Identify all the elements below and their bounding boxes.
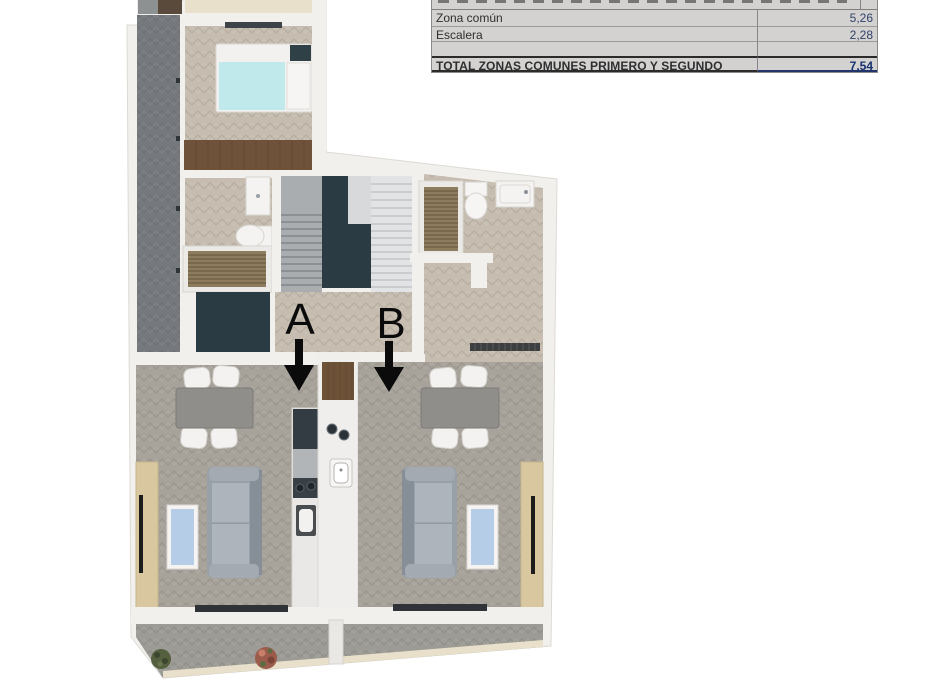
dining-table-a <box>176 388 253 428</box>
terrace-door-b <box>393 604 487 611</box>
bed-cushion <box>290 45 311 61</box>
shower-a <box>183 246 272 292</box>
dining-table-b <box>421 388 499 428</box>
plant-green <box>151 649 171 669</box>
bathroom-a <box>183 176 281 354</box>
corridor <box>137 15 185 352</box>
terrace-door-a <box>195 605 288 612</box>
gray-stub <box>138 0 158 14</box>
sofa-b <box>402 467 457 578</box>
corridor-wall <box>180 15 185 352</box>
window-b <box>467 505 498 569</box>
toilet-a <box>236 225 272 247</box>
tv-sideboard-a <box>136 462 158 608</box>
storage-dark-block <box>196 292 270 354</box>
radiator-b <box>470 343 540 351</box>
bathroom-b <box>410 174 543 362</box>
island-wood-top <box>322 362 354 400</box>
terrace-divider <box>329 620 343 664</box>
bed-blanket <box>219 62 285 110</box>
bedroom <box>180 0 425 180</box>
kitchen-a-counter-dark <box>293 409 318 449</box>
stair-landing <box>348 176 371 224</box>
unit-a-label: A <box>285 295 315 344</box>
upper-terrace-band <box>185 0 315 13</box>
stair-void-upper <box>322 176 348 224</box>
bed-pillow <box>287 63 310 109</box>
bed <box>216 44 312 112</box>
plant-flowers <box>255 647 277 669</box>
living-room-a <box>136 365 320 608</box>
stair-flight-right <box>371 176 412 292</box>
top-strip <box>138 0 315 14</box>
screenshot-page: Zona común 5,26 Escalera 2,28 TOTAL ZONA… <box>0 0 935 682</box>
shower-b <box>419 181 463 257</box>
kitchen-a-sink <box>296 505 316 536</box>
sink-b <box>496 181 534 207</box>
wardrobe <box>184 140 312 170</box>
terrace <box>136 620 543 678</box>
window-a <box>167 505 198 569</box>
living-room-b <box>358 362 543 608</box>
unit-b-label: B <box>376 299 405 348</box>
tv-b <box>531 496 535 574</box>
tv-a <box>139 495 143 573</box>
stair-flight-left <box>281 176 322 292</box>
kitchen-strip-a <box>292 408 320 608</box>
planter-stub <box>158 0 182 14</box>
island-sink <box>330 459 352 487</box>
sofa-a <box>207 467 262 578</box>
kitchen-island-b <box>316 352 360 618</box>
bedroom-window <box>225 22 282 28</box>
bathroom-a-right-wall <box>272 176 281 292</box>
tv-sideboard-b <box>521 462 543 608</box>
toilet-b <box>465 182 487 219</box>
bedroom-right-wall <box>312 0 326 172</box>
floor-plan: A B <box>0 0 935 682</box>
kitchen-a-steel <box>293 449 318 478</box>
washbasin-a-drain <box>256 194 260 198</box>
stair-void-lower <box>322 224 371 288</box>
